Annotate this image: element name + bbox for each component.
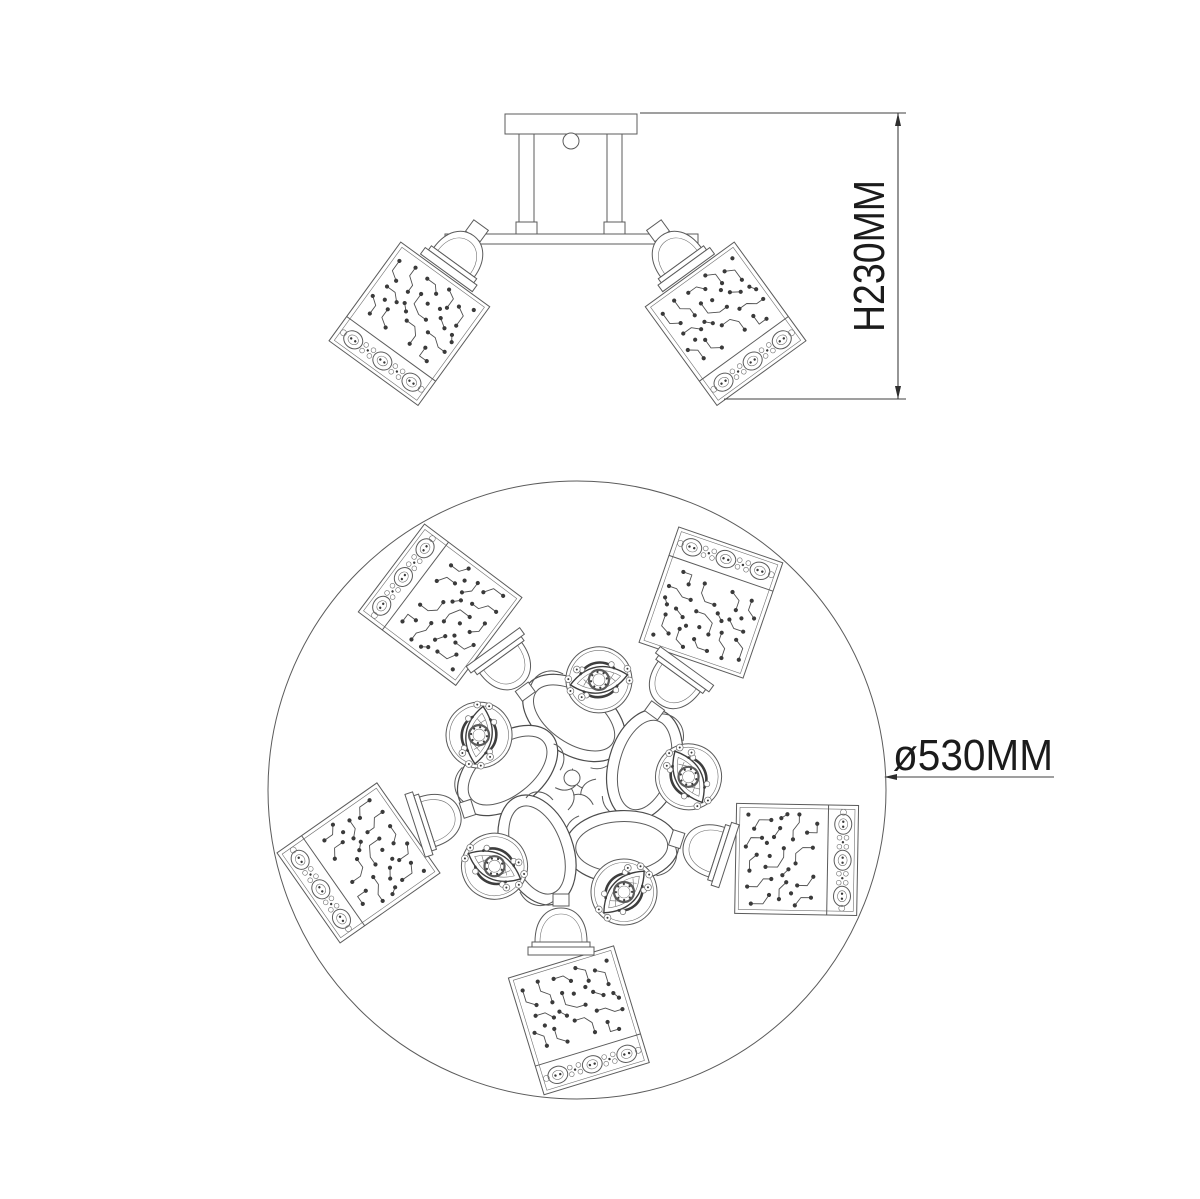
chandelier-dimension-drawing: H230MM ø530MM xyxy=(0,0,1200,1199)
mount-rod-left xyxy=(519,134,534,224)
diameter-dimension-label: ø530MM xyxy=(893,731,1053,780)
height-dimension-label: H230MM xyxy=(845,180,894,332)
technical-drawing-page: H230MM ø530MM xyxy=(0,0,1200,1199)
canopy-screw-hole xyxy=(563,133,579,149)
diameter-dimension: ø530MM xyxy=(884,731,1054,780)
ceiling-canopy xyxy=(505,114,637,134)
plan-view: ø530MM xyxy=(258,481,1054,1099)
side-lamp-right xyxy=(609,193,806,406)
mount-rod-right xyxy=(607,134,622,224)
rod-collar-right xyxy=(604,222,625,234)
side-lamp-left xyxy=(329,193,526,406)
center-mount-hole xyxy=(564,770,580,786)
side-view: H230MM xyxy=(329,113,906,405)
rod-collar-left xyxy=(516,222,537,234)
